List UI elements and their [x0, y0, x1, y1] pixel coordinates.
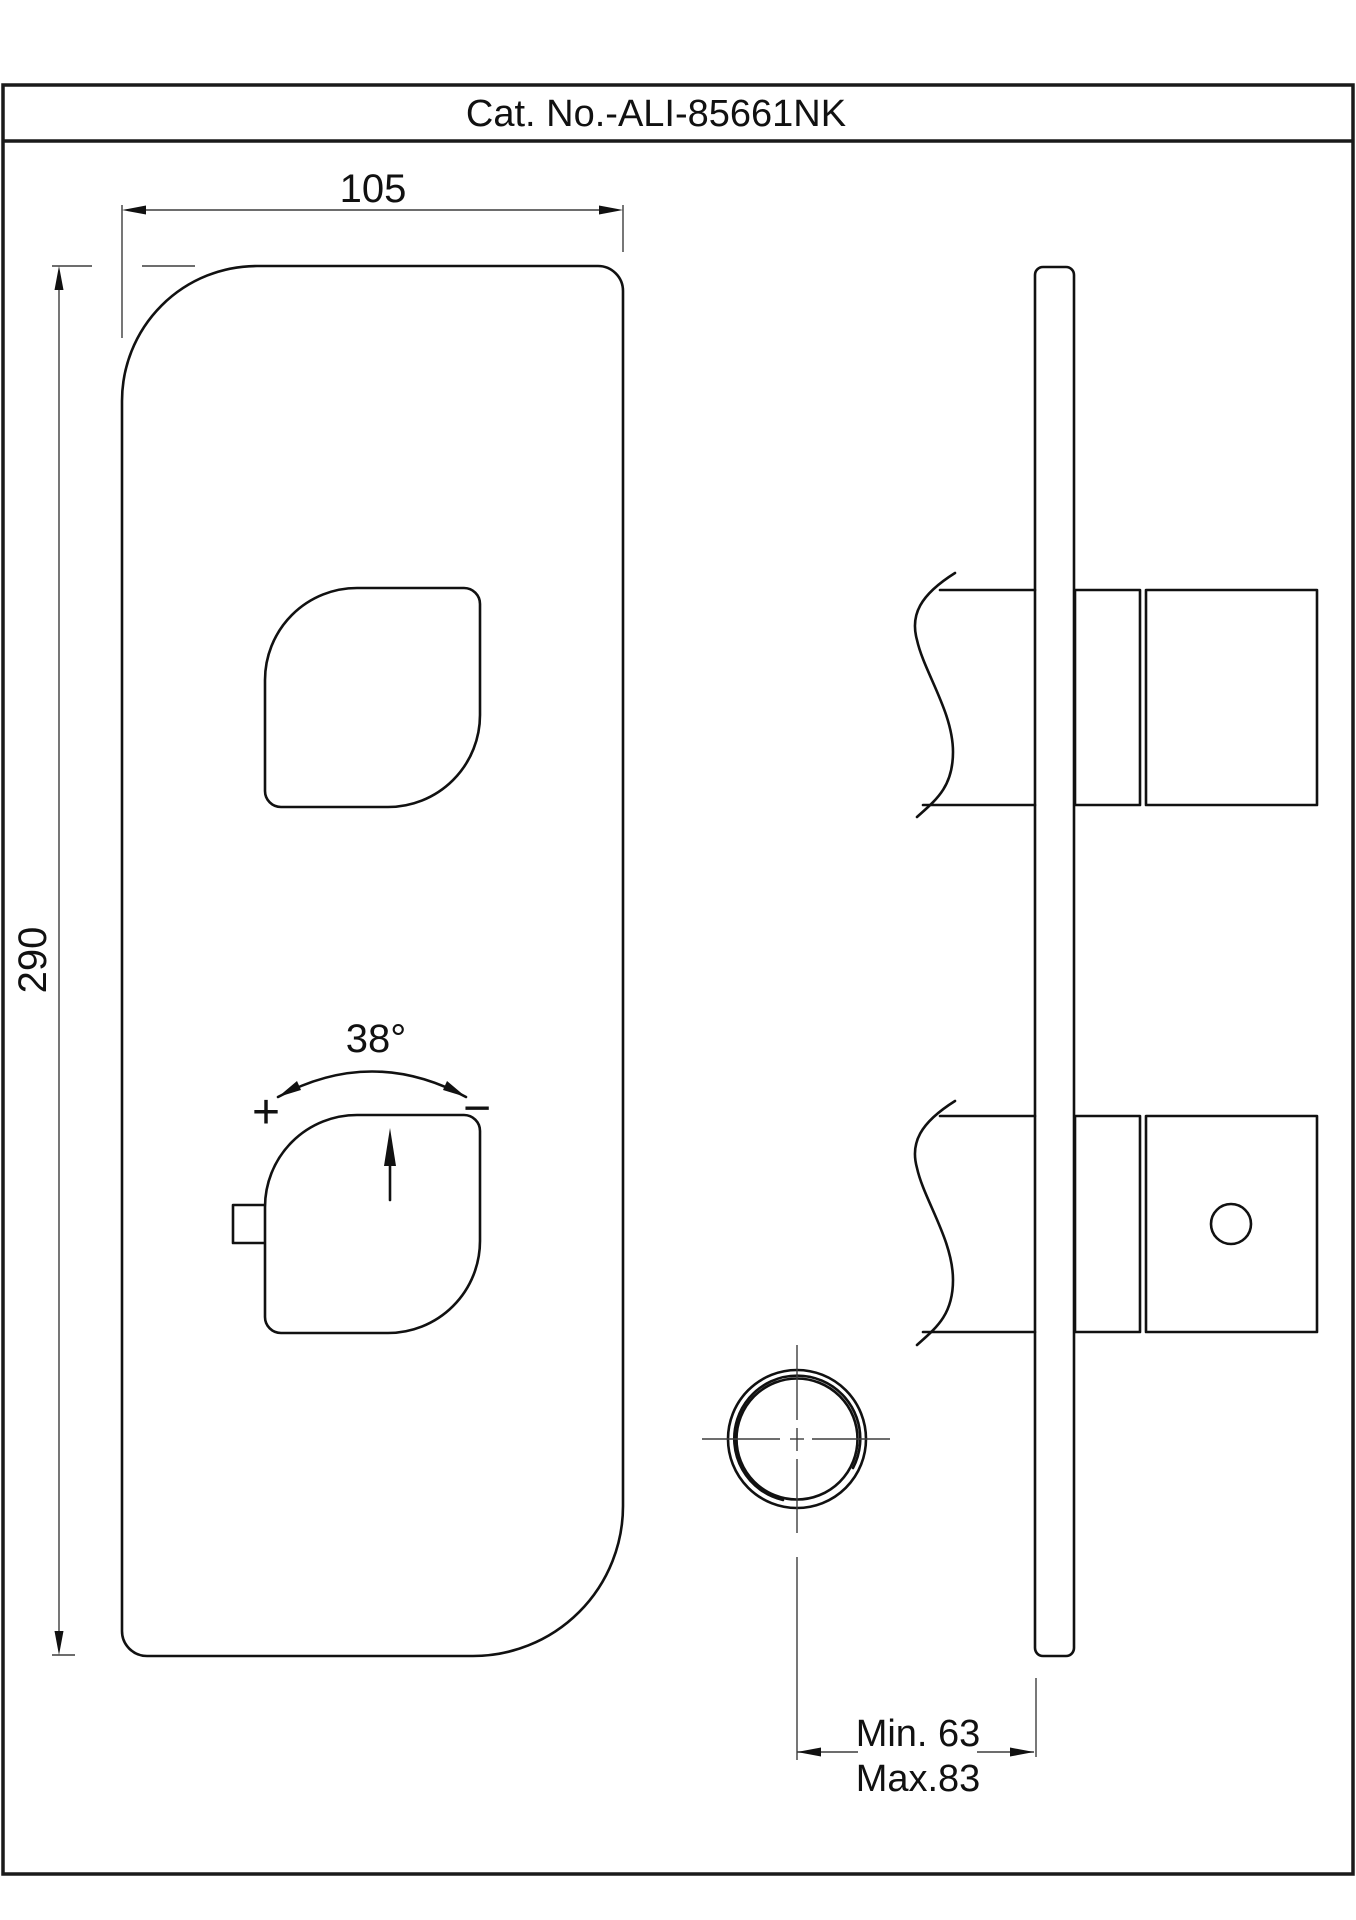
lower-valve-spacer [1075, 1116, 1140, 1332]
width-dimension-label: 105 [340, 167, 407, 211]
max-depth-label: Max.83 [856, 1758, 981, 1800]
outlet-centerlines [702, 1345, 890, 1533]
front-view-plate [122, 266, 623, 1656]
lower-valve-body [1146, 1116, 1317, 1332]
break-line-upper [915, 573, 955, 817]
knob-angle-label: 38° [346, 1017, 407, 1061]
upper-valve-spacer [1075, 590, 1140, 805]
upper-opening [265, 588, 480, 807]
knob-plus-label: + [252, 1086, 280, 1139]
depth-dimension: Min. 63 Max.83 [797, 1557, 1036, 1800]
upper-valve-pipe [915, 573, 1035, 817]
knob-tab [233, 1205, 267, 1243]
temperature-knob [265, 1115, 480, 1333]
drawing-sheet: Cat. No.-ALI-85661NK 38° + − 105 290 [0, 0, 1356, 1920]
outlet-pipe-section [702, 1345, 890, 1533]
upper-valve-body [1146, 590, 1317, 805]
height-dimension-label: 290 [11, 927, 55, 994]
min-depth-label: Min. 63 [856, 1713, 981, 1755]
wall-plate-side [1035, 267, 1074, 1656]
knob-minus-label: − [463, 1082, 491, 1135]
lower-valve-pipe [915, 1101, 1035, 1345]
catalog-number-label: Cat. No.-ALI-85661NK [466, 93, 846, 135]
break-line-lower [915, 1101, 955, 1345]
